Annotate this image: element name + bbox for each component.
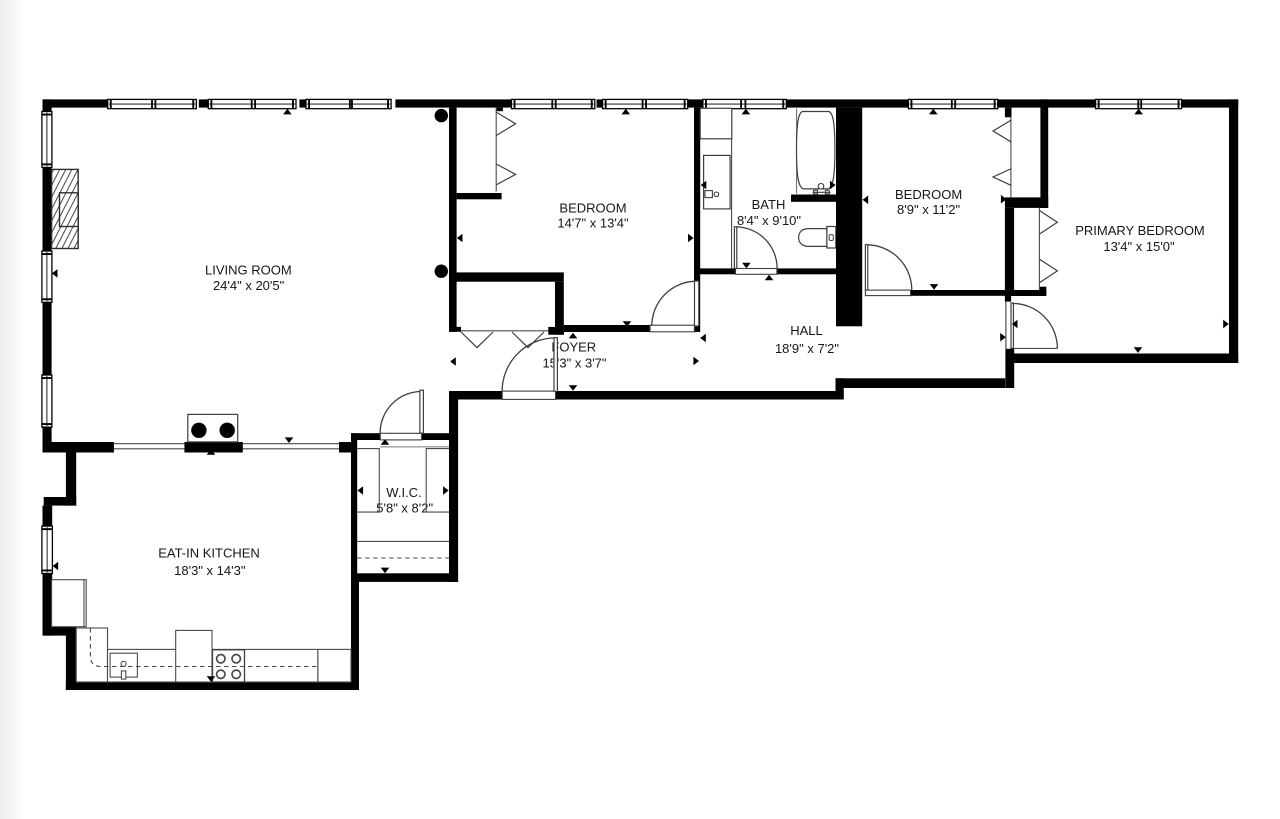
- svg-text:18'9" x 7'2": 18'9" x 7'2": [775, 341, 839, 356]
- svg-text:BATH: BATH: [752, 197, 786, 212]
- svg-text:15'3" x 3'7": 15'3" x 3'7": [542, 356, 606, 371]
- svg-text:14'7" x 13'4": 14'7" x 13'4": [557, 216, 629, 231]
- svg-text:BEDROOM: BEDROOM: [559, 200, 626, 215]
- svg-text:LIVING ROOM: LIVING ROOM: [205, 263, 292, 278]
- svg-text:HALL: HALL: [790, 323, 823, 338]
- svg-text:5'8" x 8'2": 5'8" x 8'2": [376, 501, 433, 516]
- svg-text:BEDROOM: BEDROOM: [895, 187, 962, 202]
- svg-text:EAT-IN KITCHEN: EAT-IN KITCHEN: [158, 545, 260, 560]
- svg-text:W.I.C.: W.I.C.: [386, 485, 421, 500]
- svg-text:FOYER: FOYER: [551, 340, 596, 355]
- svg-text:PRIMARY BEDROOM: PRIMARY BEDROOM: [1075, 223, 1205, 238]
- svg-text:8'9" x 11'2": 8'9" x 11'2": [897, 202, 960, 217]
- svg-text:8'4" x 9'10": 8'4" x 9'10": [737, 213, 801, 228]
- svg-text:18'3" x 14'3": 18'3" x 14'3": [174, 563, 246, 578]
- svg-text:13'4" x 15'0": 13'4" x 15'0": [1103, 239, 1175, 254]
- svg-text:24'4" x 20'5": 24'4" x 20'5": [213, 278, 285, 293]
